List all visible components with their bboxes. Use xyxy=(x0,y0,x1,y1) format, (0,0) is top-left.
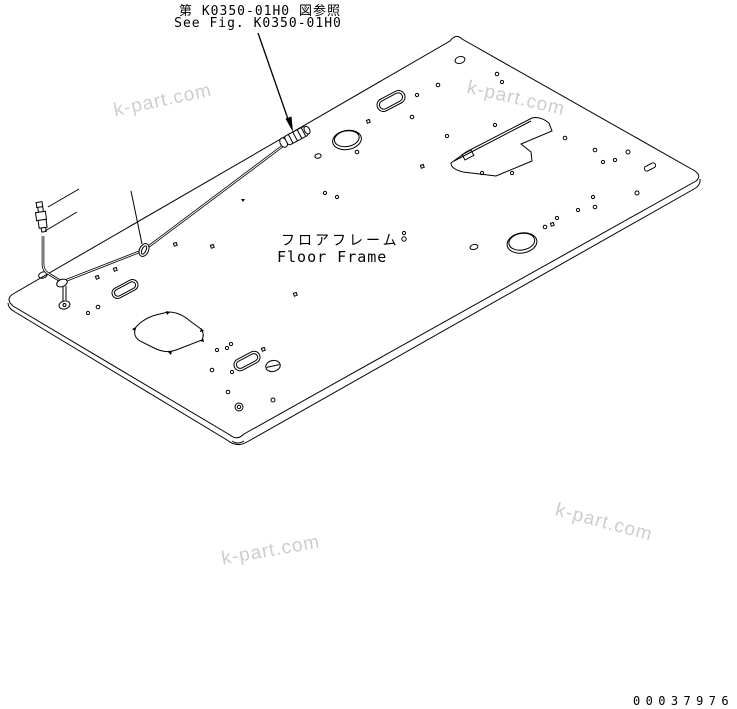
slot-upper xyxy=(375,88,408,114)
reference-arrow xyxy=(258,33,293,132)
figure-reference-en: See Fig. K0350-01H0 xyxy=(158,16,358,31)
hole-ellipse-bottom xyxy=(265,359,282,373)
drawing-number: 00037976 xyxy=(633,694,734,708)
parts-diagram-page: 第 K0350-01H0 図参照 See Fig. K0350-01H0 フロア… xyxy=(0,0,737,709)
slot-bottom xyxy=(232,349,262,373)
hole-small-center xyxy=(314,153,321,159)
grommet-fitting xyxy=(278,124,311,148)
hole-small-mid xyxy=(470,244,479,251)
part-label-jp: フロアフレーム xyxy=(281,230,400,250)
hole-ellipse-right xyxy=(505,231,538,256)
floor-frame-drawing xyxy=(0,0,737,709)
part-label-en: Floor Frame xyxy=(277,248,387,266)
hose-assembly xyxy=(34,124,312,310)
hose-clamp xyxy=(137,242,151,258)
plate-thickness-edge xyxy=(8,179,700,445)
hole-small-top xyxy=(454,55,465,64)
hose-eyelet xyxy=(58,286,71,310)
slot-left xyxy=(110,278,140,301)
cutout-notched xyxy=(451,118,552,176)
slot-tiny-right xyxy=(644,162,657,172)
hole-ellipse-top xyxy=(331,128,363,152)
hole-double-circle xyxy=(235,403,243,411)
leader-lines xyxy=(45,189,142,244)
bleed-valve xyxy=(34,201,48,232)
cutout-rounded xyxy=(132,311,204,355)
hole-pair-mid xyxy=(402,231,406,241)
